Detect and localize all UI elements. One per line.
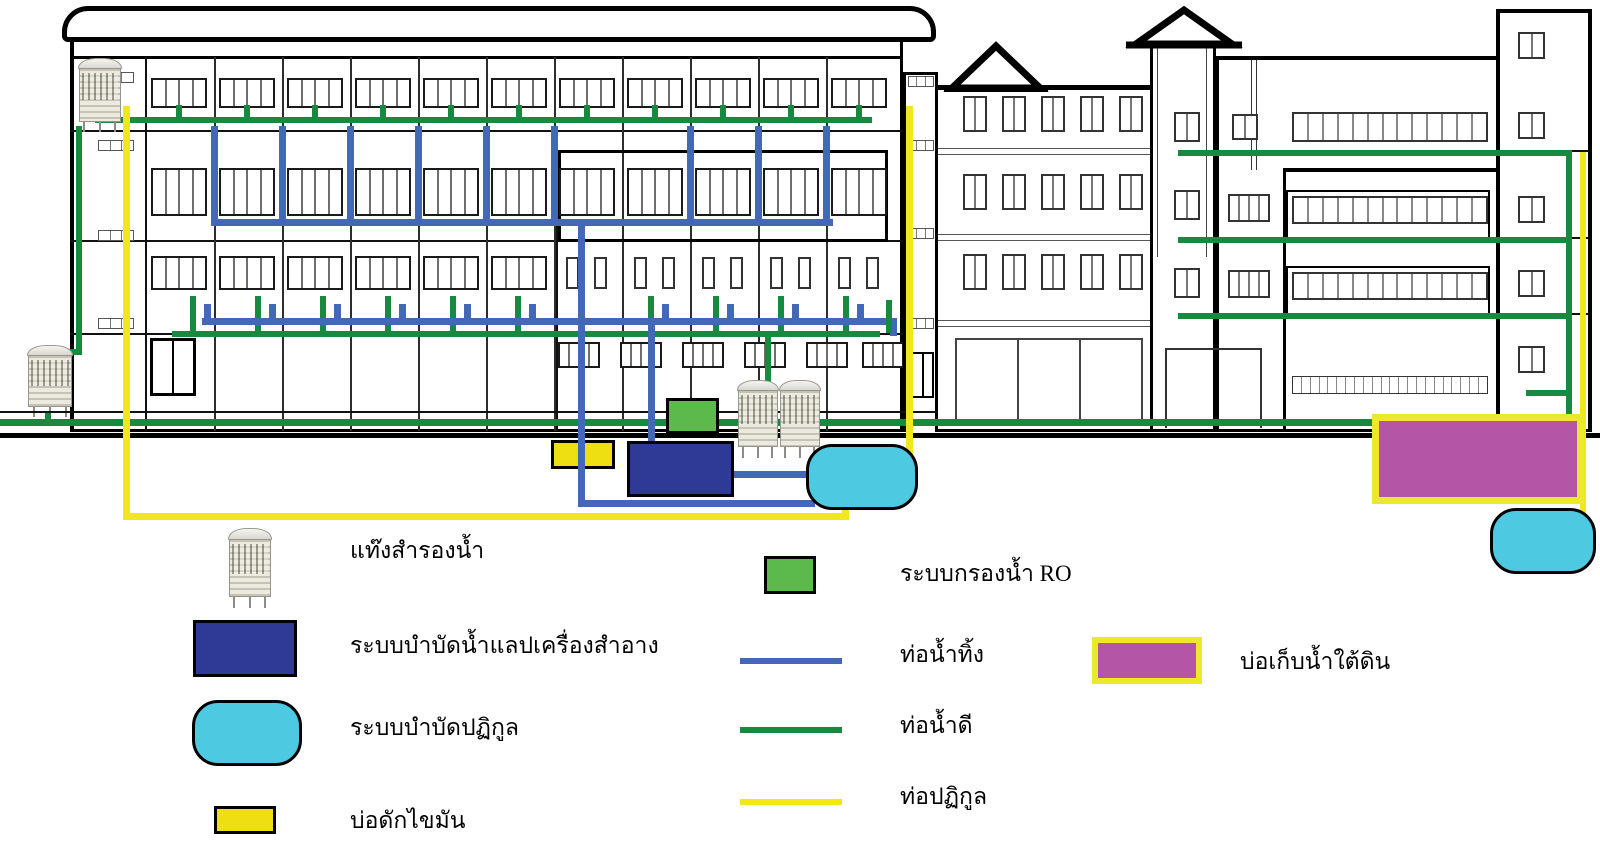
- tower-window: [1174, 268, 1200, 298]
- window-pane: [965, 256, 976, 288]
- floor4-window: [695, 78, 751, 108]
- middle-window: [1041, 174, 1065, 210]
- window-pane: [262, 170, 274, 214]
- window-pane: [1082, 176, 1093, 208]
- main-bay-column: [282, 57, 284, 431]
- tank-leg: [742, 447, 744, 458]
- window-pane: [174, 341, 193, 393]
- window-pane: [384, 80, 398, 106]
- window-pane: [694, 344, 704, 366]
- window-pane: [1230, 196, 1240, 220]
- tank-body: [79, 68, 121, 122]
- floor2-window: [355, 256, 411, 290]
- window-pane: [590, 344, 598, 366]
- window-pane: [1413, 198, 1428, 222]
- legend-label-grease-trap: บ่อดักไขมัน: [350, 803, 465, 839]
- window-pane: [1015, 98, 1024, 130]
- window-pane: [439, 258, 453, 288]
- window-pane: [1294, 274, 1309, 298]
- window-pane: [976, 98, 985, 130]
- window-pane: [1398, 198, 1413, 222]
- floor3-window: [287, 168, 343, 216]
- right-window-strip: [1292, 196, 1488, 224]
- main-building-roof: [62, 6, 936, 42]
- floor3-window: [491, 168, 547, 216]
- window-pane: [1132, 256, 1141, 288]
- window-pane: [1309, 274, 1324, 298]
- middle-window: [1119, 174, 1143, 210]
- window-pane: [1339, 274, 1354, 298]
- floor4-window: [151, 78, 207, 108]
- window-pane: [425, 80, 439, 106]
- floor2-window: [491, 256, 547, 290]
- window-pane: [697, 80, 711, 106]
- window-pane: [1260, 272, 1268, 296]
- waste-drop-pipe: [211, 126, 218, 222]
- connector-right-wall: [935, 72, 938, 432]
- floor1-window: [806, 342, 848, 368]
- window-pane: [303, 80, 317, 106]
- window-pane: [1043, 98, 1054, 130]
- window-pane: [575, 170, 589, 214]
- window-pane: [507, 170, 521, 214]
- window-pane: [534, 258, 546, 288]
- window-pane: [248, 170, 262, 214]
- window-pane: [917, 141, 925, 150]
- floor3-window: [423, 168, 479, 216]
- clean-downpipe-left: [76, 126, 82, 352]
- waste-pipe-floor2: [202, 318, 897, 325]
- window-pane: [1384, 274, 1399, 298]
- clean-stub-floor4: [584, 105, 590, 119]
- waste-drop-pipe: [823, 126, 830, 222]
- window-pane: [1520, 198, 1533, 221]
- window-pane: [1398, 274, 1413, 298]
- floor3-window: [763, 168, 819, 216]
- clean-stub-right: [1526, 390, 1572, 396]
- tank-grill: [82, 73, 117, 100]
- window-pane: [1428, 274, 1443, 298]
- window-pane: [153, 258, 167, 288]
- clean-stub-floor4: [788, 105, 794, 119]
- window-pane: [1250, 272, 1260, 296]
- middle-window: [1119, 254, 1143, 290]
- floor4-window: [287, 78, 343, 108]
- floor3-window: [219, 168, 275, 216]
- window-pane: [629, 80, 643, 106]
- floor4-window: [627, 78, 683, 108]
- floor4-window: [423, 78, 479, 108]
- window-pane: [917, 319, 925, 328]
- legend-label-sewage-pipe: ท่อปฏิกูล: [900, 779, 987, 815]
- tank-leg: [264, 597, 266, 608]
- window-pane: [1458, 114, 1473, 140]
- legend-label-reserve-tank: แท๊งสำรองน้ำ: [350, 533, 484, 569]
- right-annex-top: [1283, 168, 1496, 172]
- clean-stub-floor4: [244, 105, 250, 119]
- window-pane: [167, 80, 181, 106]
- window-pane: [588, 170, 602, 214]
- window-pane: [840, 259, 849, 287]
- sewage-riser-right: [906, 106, 913, 459]
- window-pane: [643, 80, 657, 106]
- lab-treatment-box: [627, 441, 734, 497]
- main-bay-column: [214, 57, 216, 431]
- window-pane: [1339, 198, 1354, 222]
- supply-tank-1: [737, 380, 779, 458]
- ro-filter-box: [666, 398, 719, 434]
- window-pane: [800, 259, 809, 287]
- waste-drop-pipe: [687, 126, 694, 222]
- window-pane: [194, 170, 206, 214]
- window-pane: [1354, 114, 1369, 140]
- window-pane: [1093, 98, 1102, 130]
- window-pane: [1234, 116, 1246, 138]
- floor2-narrow-window: [798, 257, 811, 289]
- main-bay-column: [486, 57, 488, 431]
- connector-door: [911, 352, 934, 398]
- window-pane: [1240, 272, 1250, 296]
- main-bay-column: [690, 57, 692, 431]
- window-pane: [357, 170, 371, 214]
- window-pane: [864, 344, 874, 366]
- clean-stub-floor2: [515, 296, 521, 334]
- tower-window: [1174, 190, 1200, 220]
- underground-tank-swatch: [1092, 637, 1202, 684]
- floor4-window: [355, 78, 411, 108]
- clean-stub-floor4: [856, 105, 862, 119]
- floor2-narrow-window: [662, 257, 675, 289]
- window-pane: [221, 80, 235, 106]
- tank-body: [780, 390, 820, 447]
- right-side-window: [1232, 114, 1258, 140]
- window-pane: [425, 170, 439, 214]
- main-bay-column: [554, 57, 556, 431]
- window-pane: [1354, 274, 1369, 298]
- window-pane: [1015, 176, 1024, 208]
- window-pane: [371, 258, 385, 288]
- middle-window: [1002, 96, 1026, 132]
- window-pane: [765, 80, 779, 106]
- window-pane: [384, 170, 398, 214]
- window-pane: [439, 170, 453, 214]
- middle-window: [963, 254, 987, 290]
- window-pane: [1246, 116, 1256, 138]
- window-pane: [1398, 114, 1413, 140]
- window-pane: [1188, 270, 1198, 296]
- window-pane: [860, 80, 874, 106]
- window-pane: [792, 80, 806, 106]
- window-pane: [1054, 256, 1063, 288]
- window-pane: [965, 176, 976, 208]
- window-pane: [772, 259, 781, 287]
- window-pane: [262, 80, 274, 106]
- window-pane: [357, 258, 371, 288]
- window-pane: [235, 170, 249, 214]
- window-pane: [704, 344, 714, 366]
- tank-leg: [83, 122, 85, 132]
- window-pane: [1473, 274, 1486, 298]
- window-pane: [316, 170, 330, 214]
- window-pane: [1413, 114, 1428, 140]
- window-pane: [1364, 377, 1373, 393]
- legend-water-tank: [228, 528, 272, 608]
- window-pane: [568, 259, 577, 287]
- middle-floor-line: [938, 326, 1150, 327]
- ground-water-tank: [27, 345, 73, 417]
- waste-pipe-floor3: [211, 219, 833, 226]
- window-pane: [534, 170, 546, 214]
- window-pane: [561, 80, 575, 106]
- window-pane: [1413, 274, 1428, 298]
- floor2-narrow-window: [770, 257, 783, 289]
- window-pane: [1121, 176, 1132, 208]
- window-pane: [248, 258, 262, 288]
- window-pane: [221, 258, 235, 288]
- tank-body: [28, 355, 72, 407]
- window-pane: [656, 170, 670, 214]
- window-pane: [602, 170, 614, 214]
- window-pane: [330, 258, 342, 288]
- clean-stub-floor4: [312, 105, 318, 119]
- right-side-window: [1228, 194, 1270, 222]
- tank-leg: [771, 447, 773, 458]
- window-pane: [965, 98, 976, 130]
- floor2-narrow-window: [594, 257, 607, 289]
- septic-tank-right: [1490, 508, 1596, 574]
- waste-drop-pipe: [755, 126, 762, 222]
- tall-block-window: [1518, 32, 1545, 59]
- window-pane: [1369, 274, 1384, 298]
- window-pane: [1176, 114, 1188, 140]
- window-pane: [1458, 274, 1473, 298]
- floor3-window: [695, 168, 751, 216]
- window-pane: [1324, 114, 1339, 140]
- floor2-window: [287, 256, 343, 290]
- window-pane: [357, 80, 371, 106]
- clean-stub-floor4: [720, 105, 726, 119]
- window-pane: [235, 258, 249, 288]
- window-pane: [1473, 198, 1486, 222]
- window-pane: [1373, 377, 1382, 393]
- floor2-window: [423, 256, 479, 290]
- floor2-window: [151, 256, 207, 290]
- legend-label-underground-tank: บ่อเก็บน้ำใต้ดิน: [1240, 644, 1390, 680]
- window-pane: [884, 344, 894, 366]
- window-pane: [1188, 114, 1198, 140]
- clean-pipe-right: [1178, 237, 1572, 243]
- window-pane: [1320, 377, 1329, 393]
- middle-floor-line: [938, 320, 1150, 321]
- right-window-strip-low: [1292, 376, 1488, 394]
- window-pane: [1082, 256, 1093, 288]
- window-pane: [1435, 377, 1444, 393]
- window-pane: [684, 344, 694, 366]
- window-pane: [466, 170, 478, 214]
- window-pane: [643, 170, 657, 214]
- window-pane: [493, 258, 507, 288]
- window-pane: [289, 170, 303, 214]
- window-pane: [1408, 377, 1417, 393]
- window-pane: [534, 80, 546, 106]
- tall-block-window: [1518, 196, 1545, 223]
- window-pane: [711, 80, 725, 106]
- right-side-window: [1228, 270, 1270, 298]
- window-pane: [1390, 377, 1399, 393]
- middle-floor-line: [938, 234, 1150, 235]
- window-pane: [976, 256, 985, 288]
- main-bay-column: [350, 57, 352, 431]
- middle-garage-band: [955, 338, 1143, 426]
- middle-window: [1041, 96, 1065, 132]
- tank-body: [229, 539, 271, 597]
- floor2-narrow-window: [702, 257, 715, 289]
- clean-stub-floor2: [320, 296, 326, 334]
- window-pane: [776, 344, 784, 366]
- window-pane: [1121, 256, 1132, 288]
- clean-pipe-right: [1178, 150, 1572, 156]
- window-pane: [1428, 114, 1443, 140]
- window-pane: [520, 170, 534, 214]
- window-pane: [1294, 198, 1309, 222]
- waste-riser-main: [578, 219, 585, 507]
- window-pane: [1444, 377, 1453, 393]
- clean-stub-floor2: [255, 296, 261, 334]
- window-pane: [1443, 274, 1458, 298]
- window-pane: [1443, 198, 1458, 222]
- main-bay-column: [622, 57, 624, 431]
- window-pane: [779, 170, 793, 214]
- window-pane: [575, 80, 589, 106]
- window-pane: [398, 170, 410, 214]
- main-bay-column: [758, 57, 760, 431]
- window-pane: [909, 77, 917, 86]
- window-pane: [1461, 377, 1470, 393]
- building-plumbing-diagram: แท๊งสำรองน้ำ ระบบบำบัดน้ำแลปเครื่องสำอาง…: [0, 0, 1600, 844]
- clean-stub-floor4: [652, 105, 658, 119]
- window-pane: [636, 259, 645, 287]
- window-pane: [1339, 114, 1354, 140]
- window-pane: [384, 258, 398, 288]
- window-pane: [1533, 272, 1544, 295]
- tank-grill: [741, 395, 775, 424]
- window-pane: [818, 344, 828, 366]
- underground-storage-pond: [1372, 414, 1584, 504]
- window-pane: [847, 80, 861, 106]
- waste-drop-pipe: [347, 126, 354, 222]
- window-pane: [926, 77, 933, 86]
- window-pane: [439, 80, 453, 106]
- window-pane: [330, 170, 342, 214]
- window-pane: [1054, 98, 1063, 130]
- tank-body: [738, 390, 778, 447]
- window-pane: [1324, 274, 1339, 298]
- tank-leg: [233, 597, 235, 608]
- middle-garage-divider: [1079, 338, 1081, 426]
- tank-leg: [799, 447, 801, 458]
- floor4-window: [219, 78, 275, 108]
- entrance-door: [150, 338, 196, 396]
- window-pane: [1399, 377, 1408, 393]
- clean-stub-floor2: [190, 296, 196, 334]
- window-pane: [303, 258, 317, 288]
- middle-garage-divider: [1017, 338, 1019, 426]
- window-pane: [99, 319, 111, 328]
- window-pane: [1428, 198, 1443, 222]
- window-pane: [732, 259, 741, 287]
- floor3-window: [151, 168, 207, 216]
- middle-window: [963, 96, 987, 132]
- window-pane: [874, 344, 884, 366]
- window-pane: [779, 80, 793, 106]
- window-pane: [670, 80, 682, 106]
- window-pane: [860, 170, 874, 214]
- floor2-window: [219, 256, 275, 290]
- window-pane: [833, 80, 847, 106]
- window-pane: [622, 344, 632, 366]
- window-pane: [289, 258, 303, 288]
- window-pane: [1324, 198, 1339, 222]
- window-pane: [1520, 348, 1533, 371]
- window-pane: [1309, 198, 1324, 222]
- window-pane: [1382, 377, 1391, 393]
- clean-stub-floor2: [843, 296, 849, 334]
- clean-stub-floor4: [176, 105, 182, 119]
- floor2-narrow-window: [634, 257, 647, 289]
- clean-riser-right: [1566, 150, 1572, 420]
- window-pane: [153, 170, 167, 214]
- floor1-window: [682, 342, 724, 368]
- supply-tank-2: [779, 380, 821, 458]
- window-pane: [1337, 377, 1346, 393]
- window-pane: [738, 80, 750, 106]
- window-pane: [1311, 377, 1320, 393]
- tank-leg: [99, 122, 101, 132]
- window-pane: [1054, 176, 1063, 208]
- tank-grill: [783, 395, 817, 424]
- window-pane: [371, 80, 385, 106]
- tank-leg: [757, 447, 759, 458]
- waste-drop-pipe: [415, 126, 422, 222]
- window-pane: [847, 170, 861, 214]
- clean-stub-floor2: [713, 296, 719, 334]
- window-pane: [1250, 196, 1260, 220]
- waste-run-bottom: [578, 500, 815, 507]
- clean-pipe-floor2: [172, 331, 880, 337]
- window-pane: [520, 258, 534, 288]
- main-stair-divider: [145, 57, 147, 431]
- floor4-window: [491, 78, 547, 108]
- clean-elbow-right: [886, 300, 892, 333]
- floor2-narrow-window: [838, 257, 851, 289]
- window-pane: [180, 170, 194, 214]
- window-pane: [111, 231, 123, 240]
- window-pane: [452, 258, 466, 288]
- window-pane: [1015, 256, 1024, 288]
- right-window-strip: [1292, 112, 1488, 142]
- window-pane: [1043, 176, 1054, 208]
- window-pane: [1176, 270, 1188, 296]
- window-pane: [806, 80, 818, 106]
- window-pane: [765, 170, 779, 214]
- window-pane: [111, 141, 123, 150]
- connector-window: [908, 76, 934, 87]
- legend-label-lab-treatment: ระบบบำบัดน้ำแลปเครื่องสำอาง: [350, 628, 659, 664]
- window-pane: [724, 80, 738, 106]
- window-pane: [1384, 198, 1399, 222]
- floor3-window: [627, 168, 683, 216]
- window-pane: [316, 258, 330, 288]
